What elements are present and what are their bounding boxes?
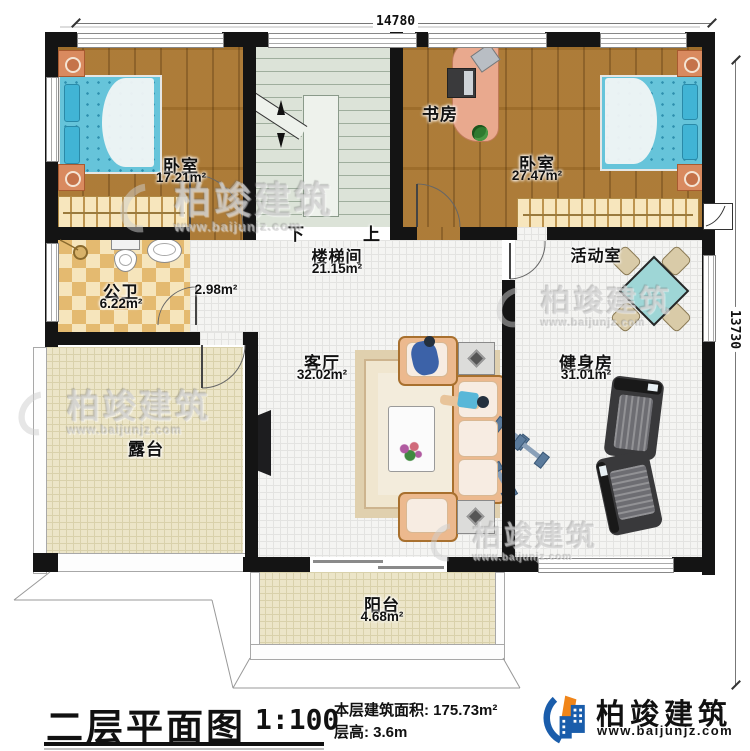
stair-up-label: 上 — [363, 220, 381, 245]
wall — [545, 32, 600, 47]
flue-box — [703, 203, 733, 230]
bathroom-area: 6.22m² — [100, 296, 143, 311]
stair-rail — [303, 95, 339, 217]
door-gap — [190, 227, 243, 240]
window — [46, 243, 59, 322]
nightstand-icon — [58, 50, 85, 77]
treadmill-icon — [603, 375, 664, 461]
bed-pillow — [682, 124, 698, 160]
wall — [502, 280, 515, 557]
wardrobe-icon — [517, 198, 699, 230]
bed-blanket — [605, 78, 657, 164]
sliding-door-panel — [378, 566, 444, 569]
floor-plan-canvas: 卧室 17.21m² 书房 卧室 27.47m² 下 上 楼梯间 21.15m²… — [0, 0, 750, 751]
floor-height-value: 3.6m — [373, 724, 407, 741]
wall — [45, 332, 200, 345]
sofa-cushion — [458, 459, 498, 496]
wall — [243, 227, 256, 240]
title-underline-thin — [44, 748, 324, 750]
window — [268, 33, 417, 48]
wall — [502, 557, 538, 572]
wall — [547, 227, 715, 240]
hall-area: 2.98m² — [195, 282, 238, 297]
stair-treads-top — [256, 47, 390, 97]
floor-area-label: 本层建筑面积: — [334, 702, 429, 719]
sliding-door-panel — [313, 560, 383, 563]
bed-pillow — [64, 84, 80, 122]
wardrobe-icon — [58, 196, 190, 228]
side-table-icon — [458, 342, 495, 375]
treadmill-console — [613, 377, 662, 396]
floor-height-label: 层高: — [334, 724, 369, 741]
dimension-height: 13730 — [727, 307, 742, 352]
window — [703, 255, 716, 342]
treadmill-belt — [614, 394, 654, 452]
study-label: 书房 — [422, 100, 458, 125]
person-head — [424, 336, 435, 347]
living-area: 32.02m² — [297, 367, 347, 382]
door-gap — [517, 227, 547, 240]
floor-area-text: 本层建筑面积: 175.73m² — [334, 699, 497, 720]
wall — [243, 32, 256, 227]
treadmill-belt — [609, 464, 655, 520]
brand-url: www.baijunjz.com — [597, 723, 733, 738]
window — [77, 33, 224, 48]
person-head — [477, 396, 489, 408]
window — [600, 33, 687, 48]
wall — [390, 32, 403, 227]
gym-area: 31.01m² — [561, 367, 611, 382]
wall — [45, 227, 190, 240]
side-table-icon — [457, 500, 495, 534]
stair-treads-right — [338, 97, 390, 227]
terrace-parapet-bottom — [33, 553, 247, 572]
computer-monitor-icon — [447, 68, 476, 98]
bedroom2-area: 27.47m² — [512, 168, 562, 183]
nightstand-icon — [677, 50, 704, 77]
terrace-corner-post — [33, 553, 58, 572]
terrace-parapet-left — [33, 347, 47, 574]
tv-icon — [258, 410, 271, 476]
nightstand-icon — [677, 164, 704, 191]
floor-height-text: 层高: 3.6m — [334, 721, 407, 742]
window — [538, 558, 674, 573]
nightstand-icon — [58, 164, 85, 191]
terrace-label: 露台 — [128, 435, 164, 460]
sofa-cushion — [458, 420, 498, 457]
person-shorts — [457, 391, 479, 410]
armchair-cushion — [406, 498, 448, 533]
wall — [245, 332, 258, 557]
brand-logo-icon — [540, 690, 596, 746]
coffee-table-icon — [388, 406, 435, 472]
bed-pillow — [64, 126, 80, 164]
flowers-icon — [396, 440, 424, 462]
window — [46, 77, 59, 162]
floor-area-value: 175.73m² — [433, 702, 497, 719]
title-underline — [44, 742, 324, 746]
dimension-line-right — [735, 60, 736, 685]
wall — [460, 227, 517, 240]
bed-pillow — [682, 84, 698, 120]
balcony-area: 4.68m² — [361, 609, 404, 624]
dimension-width: 14780 — [373, 14, 418, 29]
activity-label: 活动室 — [570, 242, 621, 266]
door-gap — [200, 332, 243, 345]
balcony-parapet-bottom — [250, 644, 505, 660]
wall — [390, 227, 417, 240]
dimension-tick — [731, 680, 741, 690]
plan-scale: 1:100 — [255, 703, 339, 736]
bedroom1-area: 17.21m² — [156, 170, 206, 185]
stair-down-label: 下 — [287, 220, 305, 245]
dimension-tick — [731, 55, 741, 65]
wall — [243, 557, 310, 572]
bed-blanket — [102, 78, 154, 167]
door-gap — [417, 227, 460, 240]
sink-icon — [147, 238, 182, 263]
wall — [672, 557, 715, 572]
stairwell-area: 21.15m² — [312, 261, 362, 276]
shower-head-icon — [73, 245, 88, 260]
window — [428, 33, 547, 48]
plant-icon — [472, 125, 488, 141]
